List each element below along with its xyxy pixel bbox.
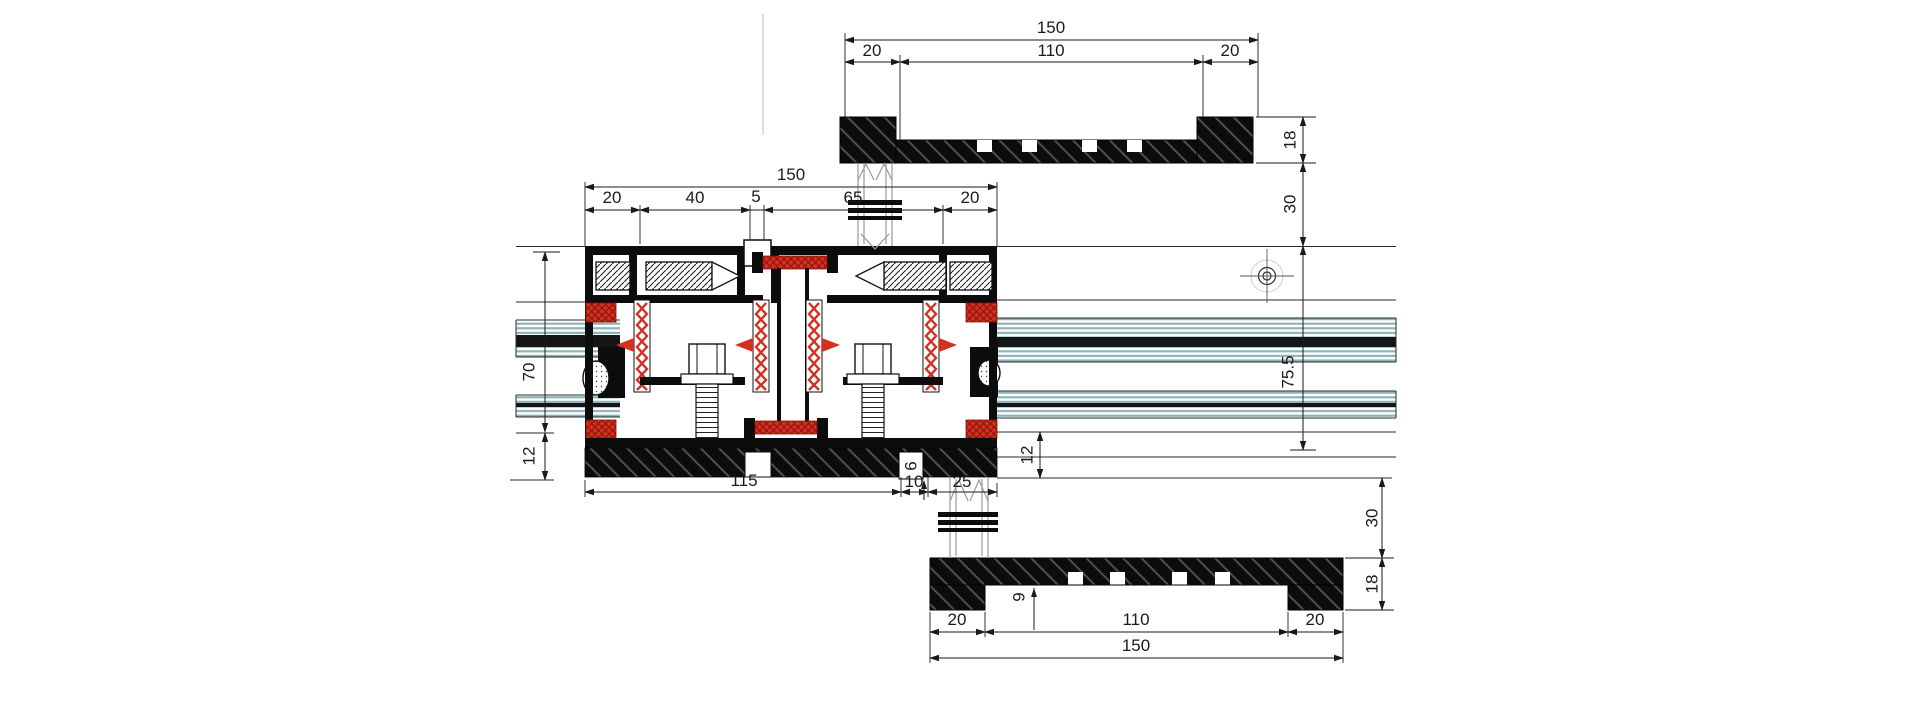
dim-mullion-s4: 65 <box>844 188 863 207</box>
dim-bottom-cap-right: 20 <box>1306 610 1325 629</box>
dim-top-cap-height: 18 <box>1281 131 1300 150</box>
dim-bottom-cap-left: 20 <box>948 610 967 629</box>
dim-mullion-s5: 20 <box>961 188 980 207</box>
mullion-profile <box>585 240 997 479</box>
bottom-cover-cap <box>930 558 1343 610</box>
dim-mullion-h-left: 12 <box>520 447 539 466</box>
technical-drawing-canvas: 150 20 110 20 18 30 75.5 150 20 40 5 65 … <box>0 0 1920 720</box>
dim-top-gap: 30 <box>1281 195 1300 214</box>
top-cover-cap <box>840 117 1253 163</box>
dim-mullion-s1: 20 <box>603 188 622 207</box>
dim-top-cap-total: 150 <box>1037 18 1065 37</box>
dim-bottom-cap-total: 150 <box>1122 636 1150 655</box>
clamping-bolts <box>640 344 943 452</box>
dim-top-cap-left: 20 <box>863 41 882 60</box>
dim-bottom-gap: 30 <box>1363 509 1382 528</box>
dim-mullion-base: 115 <box>730 471 757 490</box>
dim-mullion-channel: 25 <box>953 472 972 491</box>
dim-top-cap-right: 20 <box>1221 41 1240 60</box>
profile-section-drawing: 150 20 110 20 18 30 75.5 150 20 40 5 65 … <box>0 0 1920 720</box>
dim-bottom-cap-middle: 110 <box>1122 610 1149 629</box>
dim-mullion-depth: 70 <box>520 363 539 382</box>
dim-mullion-s2: 40 <box>686 188 705 207</box>
fastening-point-marker <box>1240 249 1294 303</box>
dim-mullion-total: 150 <box>777 165 805 184</box>
dim-mullion-h-right: 12 <box>1018 446 1037 465</box>
dim-mullion-step: 10 <box>905 472 924 491</box>
dim-bottom-cap-height: 18 <box>1363 575 1382 594</box>
glass-unit-right <box>997 318 1396 418</box>
dim-top-cap-middle: 110 <box>1037 41 1064 60</box>
mullion-base-bar <box>585 448 997 477</box>
dim-mullion-s3: 5 <box>751 187 760 206</box>
dim-mullion-notch: 6 <box>902 461 921 470</box>
dim-glazing-axis: 75.5 <box>1279 355 1298 388</box>
dim-bottom-cap-recess: 9 <box>1010 592 1029 601</box>
